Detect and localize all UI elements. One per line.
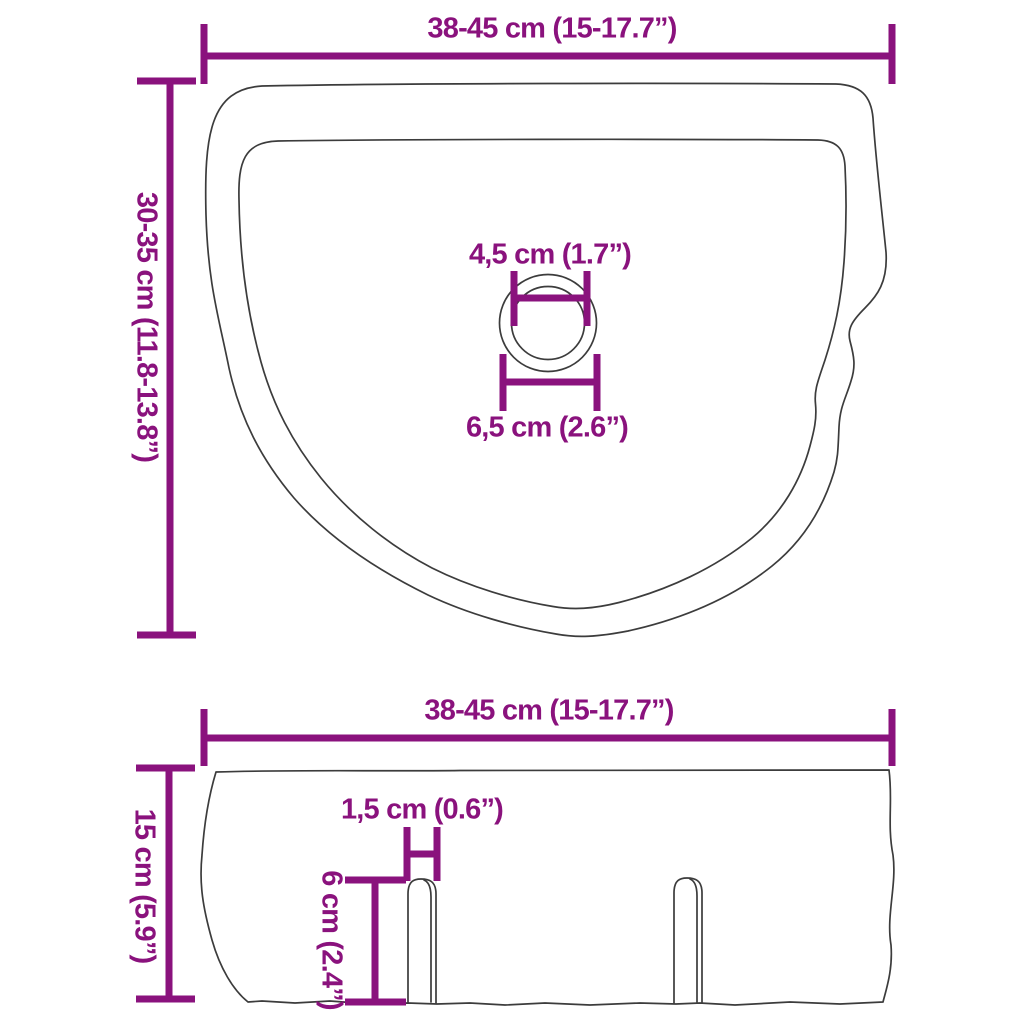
- product-dimension-diagram: 38-45 cm (15-17.7”) 30-35 cm (11.8-13.8”…: [0, 0, 1024, 1024]
- sideview-height-label: 15 cm (5.9”): [130, 809, 159, 964]
- side-view-outline: [201, 770, 894, 1005]
- basin-top-view: [206, 83, 887, 636]
- sideview-width-label: 38-45 cm (15-17.7”): [424, 697, 673, 726]
- leg-slot-left-inner-edge: [424, 880, 431, 1002]
- slot-height-label: 6 cm (2.4”): [317, 870, 346, 1010]
- basin-inner-rim: [239, 139, 846, 608]
- slot-width-dimension: [407, 827, 437, 881]
- basin-side-view: [201, 770, 894, 1005]
- drain-inner-label: 4,5 cm (1.7”): [469, 241, 631, 270]
- slot-width-label: 1,5 cm (0.6”): [341, 796, 503, 825]
- topview-width-label: 38-45 cm (15-17.7”): [427, 15, 676, 44]
- leg-slot-right-inner-edge: [690, 879, 697, 1002]
- drain-inner-dimension: [514, 271, 587, 326]
- topview-depth-label: 30-35 cm (11.8-13.8”): [132, 192, 161, 462]
- drain-outer-dimension: [503, 354, 597, 411]
- slot-height-dimension: [345, 880, 406, 1002]
- drain-outer-label: 6,5 cm (2.6”): [466, 414, 628, 443]
